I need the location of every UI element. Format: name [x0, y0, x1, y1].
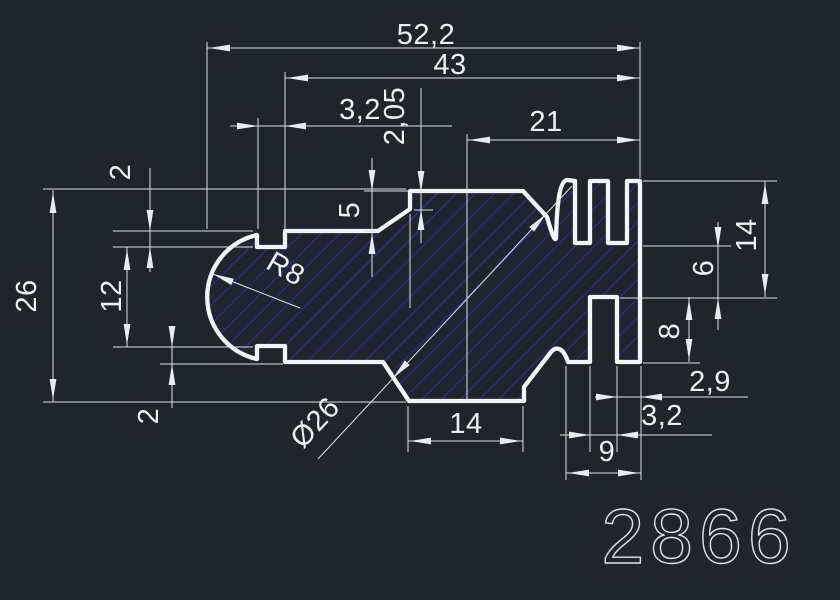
dim-top-notch-depth: 2 — [105, 164, 137, 181]
dim-bottom-notch-depth: 2 — [133, 408, 165, 425]
dim-comb-width: 9 — [599, 436, 616, 468]
dim-top-notch-width: 3,2 — [339, 94, 381, 126]
dim-overall-width: 52,2 — [397, 19, 455, 51]
drawing-number: 2866 — [601, 494, 796, 580]
dim-upper-width: 43 — [433, 49, 466, 81]
dim-bottom-slot-width: 3,2 — [641, 400, 683, 432]
dim-right-offset: 21 — [529, 106, 562, 138]
dim-shoulder-drop: 5 — [334, 202, 366, 219]
dim-between-notches: 12 — [96, 279, 128, 312]
dim-top-step: 2,05 — [379, 87, 411, 145]
profile-outline — [207, 180, 640, 401]
cad-drawing-view: 52,2 43 3,2 2,05 21 2 5 26 12 2 R8 Ø26 1… — [0, 0, 840, 600]
dim-bottom-flat: 14 — [449, 408, 482, 440]
dim-web-height: 6 — [688, 260, 720, 277]
dim-finger-width: 2,9 — [689, 366, 731, 398]
dim-overall-height: 26 — [11, 279, 43, 312]
dim-comb-height: 14 — [731, 218, 763, 251]
cad-drawing-svg: 52,2 43 3,2 2,05 21 2 5 26 12 2 R8 Ø26 1… — [0, 0, 840, 600]
dim-slot-depth: 8 — [654, 323, 686, 340]
dim-core-diameter: Ø26 — [285, 391, 347, 454]
